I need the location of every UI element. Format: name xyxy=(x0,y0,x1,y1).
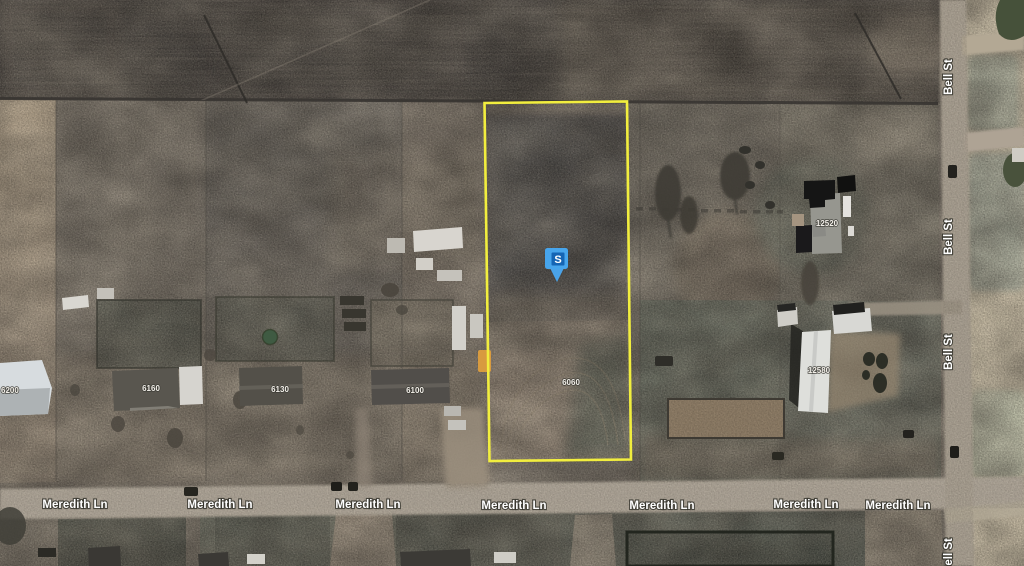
svg-text:Meredith Ln: Meredith Ln xyxy=(335,499,400,511)
svg-text:Meredith Ln: Meredith Ln xyxy=(481,500,546,512)
svg-text:6100: 6100 xyxy=(406,386,424,395)
svg-text:Meredith Ln: Meredith Ln xyxy=(187,499,252,511)
svg-text:Bell St: Bell St xyxy=(943,538,955,566)
svg-text:12580: 12580 xyxy=(808,366,831,375)
svg-text:S: S xyxy=(554,254,561,266)
svg-text:Bell St: Bell St xyxy=(943,59,955,95)
svg-text:12520: 12520 xyxy=(816,219,839,228)
svg-text:Meredith Ln: Meredith Ln xyxy=(773,499,838,511)
svg-text:6160: 6160 xyxy=(142,384,160,393)
svg-text:6200: 6200 xyxy=(1,386,19,395)
svg-text:Meredith Ln: Meredith Ln xyxy=(42,499,107,511)
svg-text:Bell St: Bell St xyxy=(943,219,955,255)
svg-text:6130: 6130 xyxy=(271,385,289,394)
svg-text:6060: 6060 xyxy=(562,378,580,387)
svg-text:Meredith Ln: Meredith Ln xyxy=(629,500,694,512)
svg-text:Meredith Ln: Meredith Ln xyxy=(865,500,930,512)
svg-text:Bell St: Bell St xyxy=(943,334,955,370)
